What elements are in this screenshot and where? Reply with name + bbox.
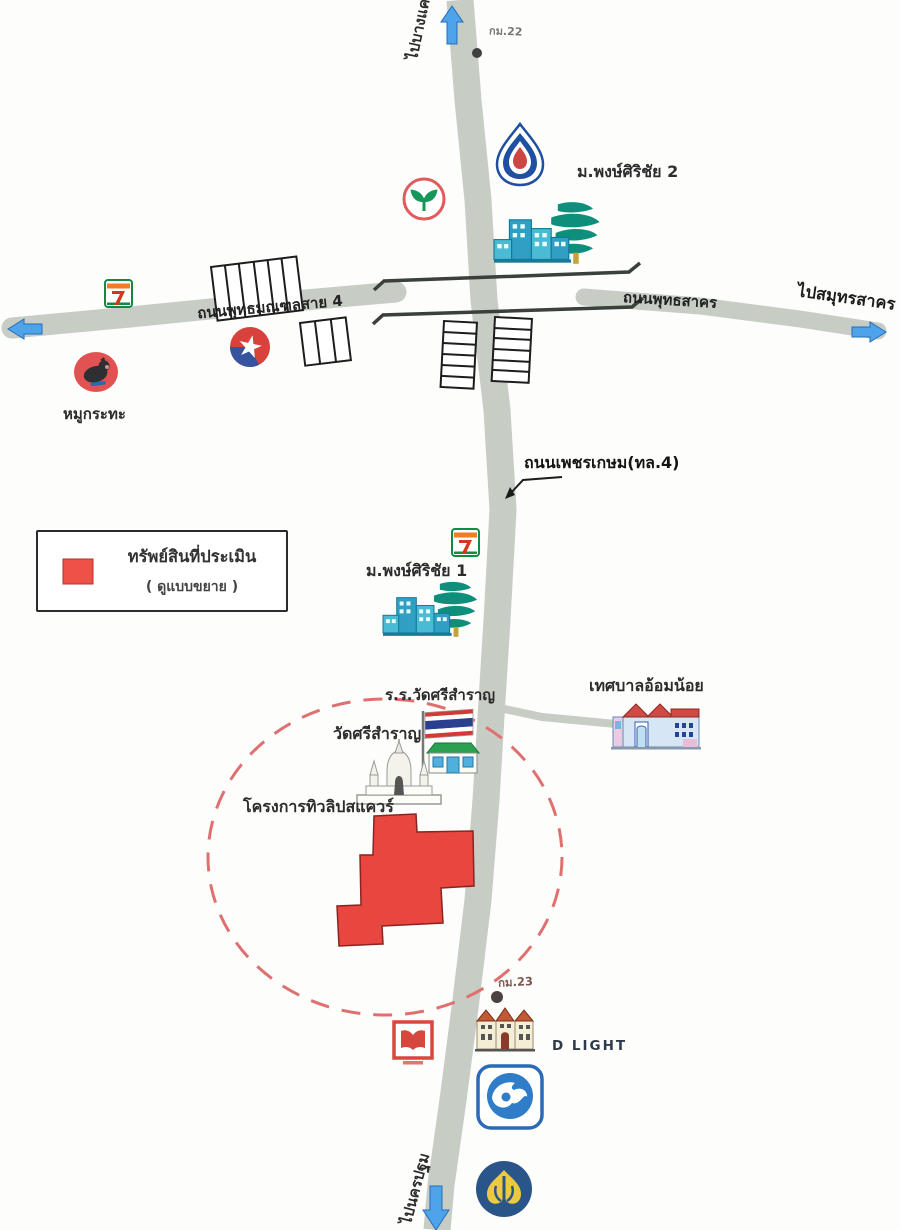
municipality-building-icon: [611, 704, 701, 750]
km23-label: กม.23: [498, 975, 534, 989]
caltex-logo: [230, 327, 270, 367]
project-label: โครงการทิวลิปสแควร์: [243, 798, 394, 816]
dlight-townhouse-icon: [475, 1008, 535, 1052]
legend-swatch: [62, 558, 94, 585]
shophouse-row-south-right: [492, 317, 532, 383]
dlight-label: D LIGHT: [552, 1039, 627, 1054]
krungthai-bank-logo: [478, 1066, 542, 1128]
municipality-side-road: [495, 707, 616, 724]
map-artwork: [0, 0, 900, 1230]
km23-dot: [491, 991, 503, 1003]
seven-eleven-logo-mid: [452, 529, 479, 556]
municipality-label: เทศบาลอ้อมน้อย: [589, 677, 704, 695]
legend-box: ทรัพย์สินที่ประเมิน ( ดูแบบขยาย ): [36, 530, 288, 612]
red-m-store-logo: [394, 1022, 432, 1065]
appraised-property-polygon: [337, 814, 474, 946]
pork-bbq-icon: [74, 352, 118, 392]
pork-bbq-label: หมูกระทะ: [63, 406, 126, 423]
legend-title: ทรัพย์สินที่ประเมิน: [128, 544, 257, 570]
legend-subtitle: ( ดูแบบขยาย ): [146, 576, 238, 598]
km22-dot: [472, 48, 482, 58]
shophouse-row-south-left: [441, 321, 477, 389]
ptt-logo: [497, 124, 543, 185]
bangkok-bank-logo: [476, 1161, 532, 1217]
school-flag-icon: [423, 709, 479, 779]
temple-icon: [357, 739, 441, 804]
road-phetkasem-label: ถนนเพชรเกษม(ทล.4): [524, 454, 679, 472]
seven-eleven-logo-north: [105, 280, 132, 307]
village2-estate-icon: [494, 202, 600, 264]
school-label: ร.ร.วัดศรีสำราญ: [385, 687, 495, 704]
village2-label: ม.พงษ์ศิริชัย 2: [577, 163, 678, 181]
km22-label: กม.22: [489, 25, 523, 38]
shophouse-row-west: [300, 317, 351, 365]
village1-estate-icon: [383, 582, 477, 637]
temple-label: วัดศรีสำราญ: [333, 725, 421, 743]
map-canvas: ไปบางแค ไปนครปฐม ไปสมุทรสาคร ถนนพุทธมณฑล…: [0, 0, 900, 1230]
kasikorn-bank-logo: [404, 179, 444, 219]
village1-label: ม.พงษ์ศิริชัย 1: [366, 562, 467, 580]
